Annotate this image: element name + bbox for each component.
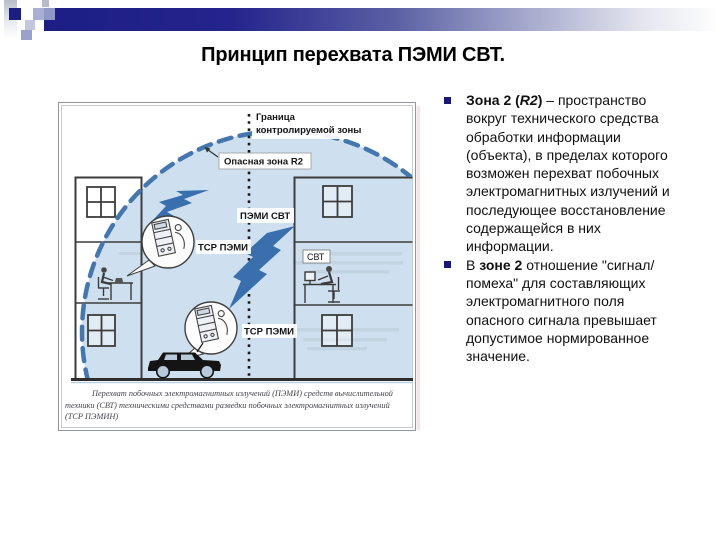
svg-text:ТСР ПЭМИ: ТСР ПЭМИ bbox=[198, 243, 248, 254]
svg-text:(ТСР ПЭМИН): (ТСР ПЭМИН) bbox=[65, 412, 118, 421]
bullet2-bold: зоне 2 bbox=[479, 257, 522, 273]
bullet-square-icon bbox=[444, 261, 451, 268]
bullet1-text: – пространство вокруг технического средс… bbox=[466, 92, 670, 254]
svt-label: СВТ bbox=[303, 250, 330, 263]
svg-text:ТСР ПЭМИ: ТСР ПЭМИ bbox=[244, 327, 294, 338]
page-title: Принцип перехвата ПЭМИ СВТ. bbox=[0, 44, 706, 67]
window bbox=[323, 186, 352, 217]
diagram-figure: Граница контролируемой зоны Опасная зона… bbox=[57, 100, 421, 434]
bullet-item-zone2-ratio: В зоне 2 отношение "сигнал/помеха" для с… bbox=[444, 256, 672, 366]
window bbox=[88, 315, 115, 346]
bullet-item-zone2-definition: Зона 2 (R2) – пространство вокруг технич… bbox=[444, 91, 672, 256]
svg-text:Перехват побочных электромагни: Перехват побочных электромагнитных излуч… bbox=[91, 389, 394, 398]
bullet2-text-start: В bbox=[466, 257, 479, 273]
pemi-svt-label: ПЭМИ СВТ bbox=[237, 208, 294, 223]
svg-text:СВТ: СВТ bbox=[307, 252, 325, 262]
bullet1-bold-italic: R2 bbox=[520, 92, 538, 108]
svg-text:Опасная зона R2: Опасная зона R2 bbox=[224, 157, 303, 168]
decor-gradient-bar bbox=[44, 8, 720, 31]
svg-text:ПЭМИ СВТ: ПЭМИ СВТ bbox=[240, 211, 290, 222]
tsr-pemi-lower-label: ТСР ПЭМИ bbox=[242, 324, 297, 338]
slide: { "slide": { "title": "Принцип перехвата… bbox=[0, 0, 720, 540]
bullet1-bold: Зона 2 ( bbox=[466, 92, 520, 108]
window bbox=[322, 315, 352, 346]
bullet1-bold2: ) bbox=[538, 92, 547, 108]
tsr-pemi-upper-label: ТСР ПЭМИ bbox=[196, 240, 251, 254]
scan-edge-artifact bbox=[417, 106, 421, 430]
decor-square-gray bbox=[42, 0, 49, 7]
decor-square-purple bbox=[21, 30, 32, 40]
boundary-label: Граница контролируемой зоны bbox=[252, 109, 370, 139]
svg-text:Граница: Граница bbox=[256, 112, 296, 123]
window bbox=[87, 187, 115, 217]
decor-square-navy bbox=[9, 8, 21, 20]
svg-text:техники (СВТ) техническими сре: техники (СВТ) техническими средствами ра… bbox=[65, 401, 391, 410]
decor-square-light bbox=[33, 8, 44, 20]
decor-square-mid bbox=[44, 8, 55, 20]
bullet-text-block: Зона 2 (R2) – пространство вокруг технич… bbox=[444, 91, 672, 365]
decor-square-lavender bbox=[25, 20, 35, 30]
svg-text:контролируемой зоны: контролируемой зоны bbox=[256, 125, 361, 136]
bullet-square-icon bbox=[444, 97, 451, 104]
